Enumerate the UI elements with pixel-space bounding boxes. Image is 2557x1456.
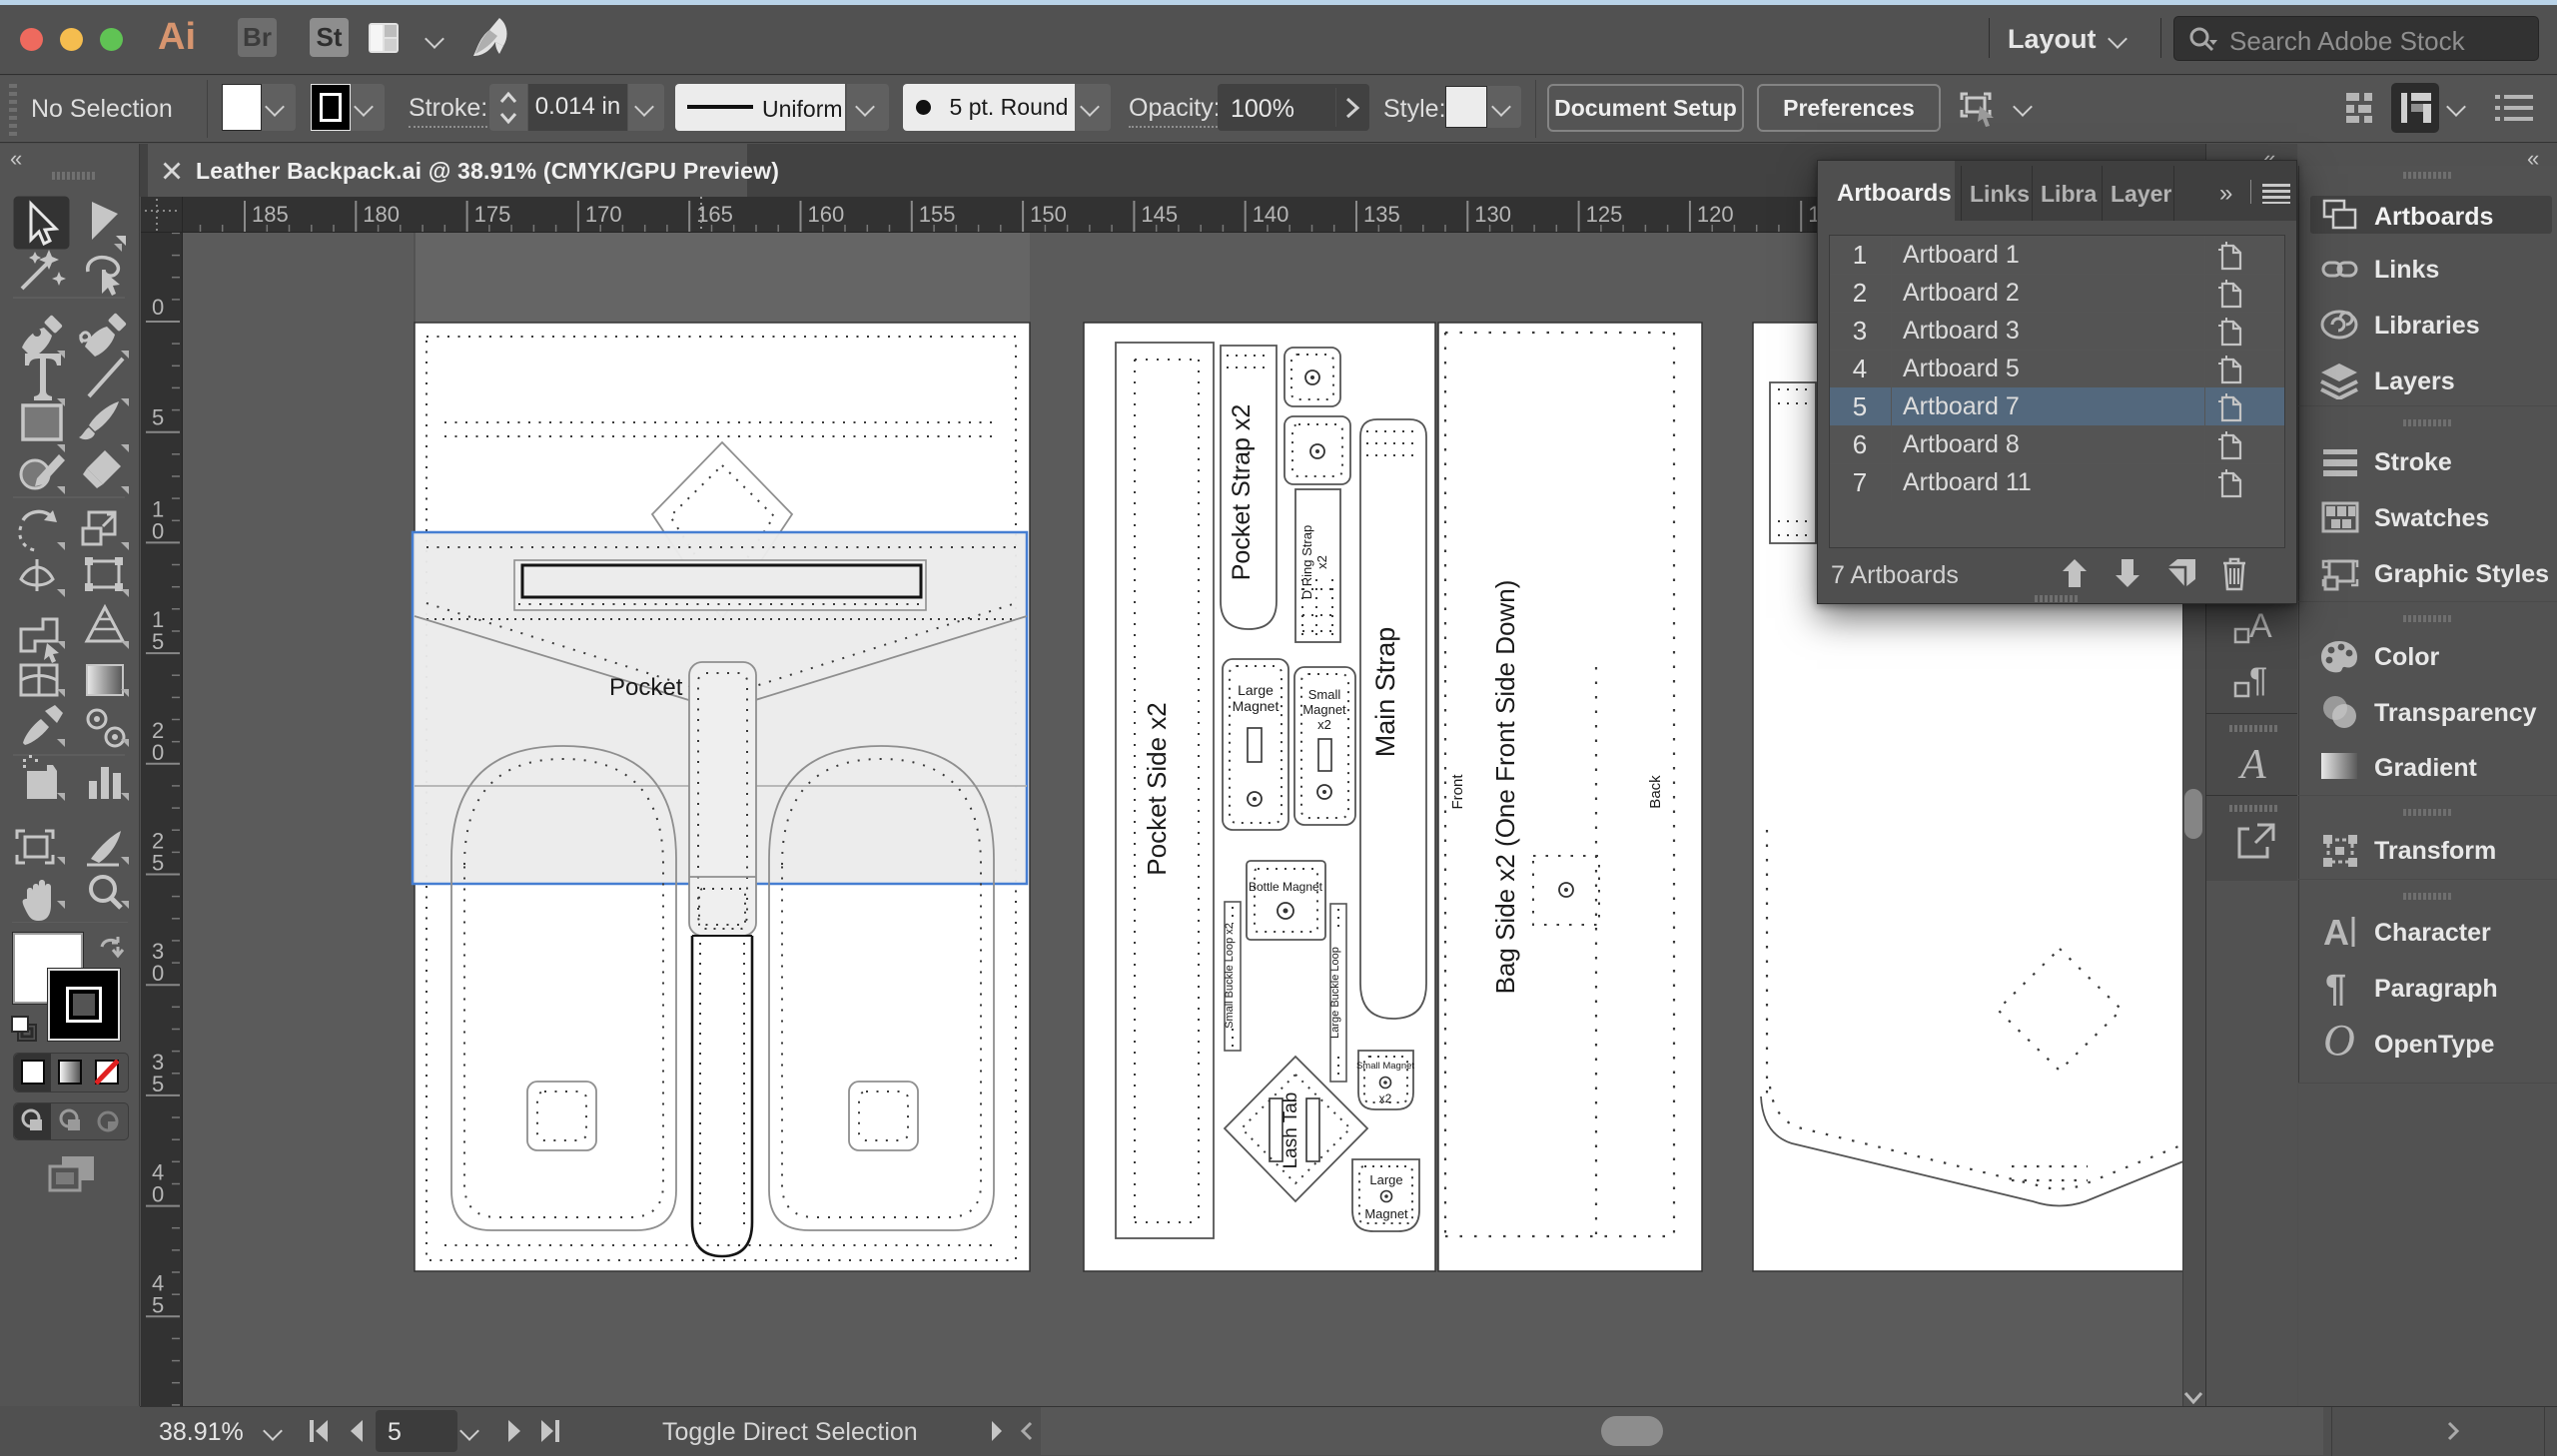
svg-text:150: 150: [1030, 202, 1067, 227]
svg-text:x2: x2: [1314, 555, 1329, 569]
svg-text:Pocket Side x2: Pocket Side x2: [1142, 702, 1172, 875]
svg-text:160: 160: [808, 202, 845, 227]
svg-text:Large: Large: [1238, 682, 1274, 698]
svg-text:Small Magnet: Small Magnet: [1356, 1061, 1414, 1072]
svg-text:180: 180: [363, 202, 400, 227]
svg-text:Pocket: Pocket: [609, 674, 683, 701]
svg-text:130: 130: [1474, 202, 1511, 227]
svg-text:Large: Large: [1369, 1172, 1402, 1187]
svg-text:0: 0: [152, 961, 164, 986]
svg-text:120: 120: [1697, 202, 1734, 227]
svg-text:5: 5: [152, 405, 164, 430]
svg-text:135: 135: [1363, 202, 1400, 227]
svg-text:175: 175: [474, 202, 511, 227]
svg-text:140: 140: [1253, 202, 1289, 227]
svg-text:x2: x2: [1317, 717, 1331, 732]
svg-text:Back: Back: [1647, 775, 1664, 809]
svg-text:125: 125: [1586, 202, 1623, 227]
svg-text:0: 0: [152, 1182, 164, 1207]
svg-text:Magnet: Magnet: [1233, 698, 1279, 714]
svg-text:0: 0: [152, 518, 164, 543]
svg-text:A: A: [2249, 607, 2272, 645]
svg-text:Front: Front: [1449, 774, 1466, 810]
svg-text:Bag Side x2 (One Front Side Do: Bag Side x2 (One Front Side Down): [1490, 580, 1520, 995]
svg-text:Large Buckle Loop: Large Buckle Loop: [1329, 947, 1341, 1039]
svg-text:165: 165: [696, 202, 733, 227]
svg-text:Bottle Magnet: Bottle Magnet: [1249, 880, 1323, 894]
svg-text:5: 5: [152, 629, 164, 654]
svg-text:Magnet: Magnet: [1364, 1206, 1408, 1221]
svg-text:Lash Tab: Lash Tab: [1280, 1092, 1301, 1169]
svg-text:155: 155: [919, 202, 956, 227]
svg-text:Main Strap: Main Strap: [1370, 627, 1400, 758]
svg-text:Magnet: Magnet: [1302, 702, 1346, 717]
svg-text:Small Buckle Loop x2: Small Buckle Loop x2: [1224, 923, 1236, 1029]
svg-text:¶: ¶: [2249, 661, 2267, 699]
svg-text:0: 0: [152, 740, 164, 765]
svg-text:Small: Small: [1308, 687, 1341, 702]
svg-text:5: 5: [152, 1072, 164, 1096]
svg-text:Pocket Strap x2: Pocket Strap x2: [1228, 404, 1256, 580]
svg-text:170: 170: [585, 202, 622, 227]
svg-text:185: 185: [252, 202, 289, 227]
svg-text:5: 5: [152, 851, 164, 876]
svg-text:A: A: [2323, 913, 2349, 951]
svg-text:¶: ¶: [2325, 969, 2346, 1007]
svg-text:5: 5: [152, 1292, 164, 1317]
svg-text:x2: x2: [1379, 1092, 1392, 1105]
svg-text:145: 145: [1141, 202, 1178, 227]
svg-text:0: 0: [152, 295, 164, 320]
